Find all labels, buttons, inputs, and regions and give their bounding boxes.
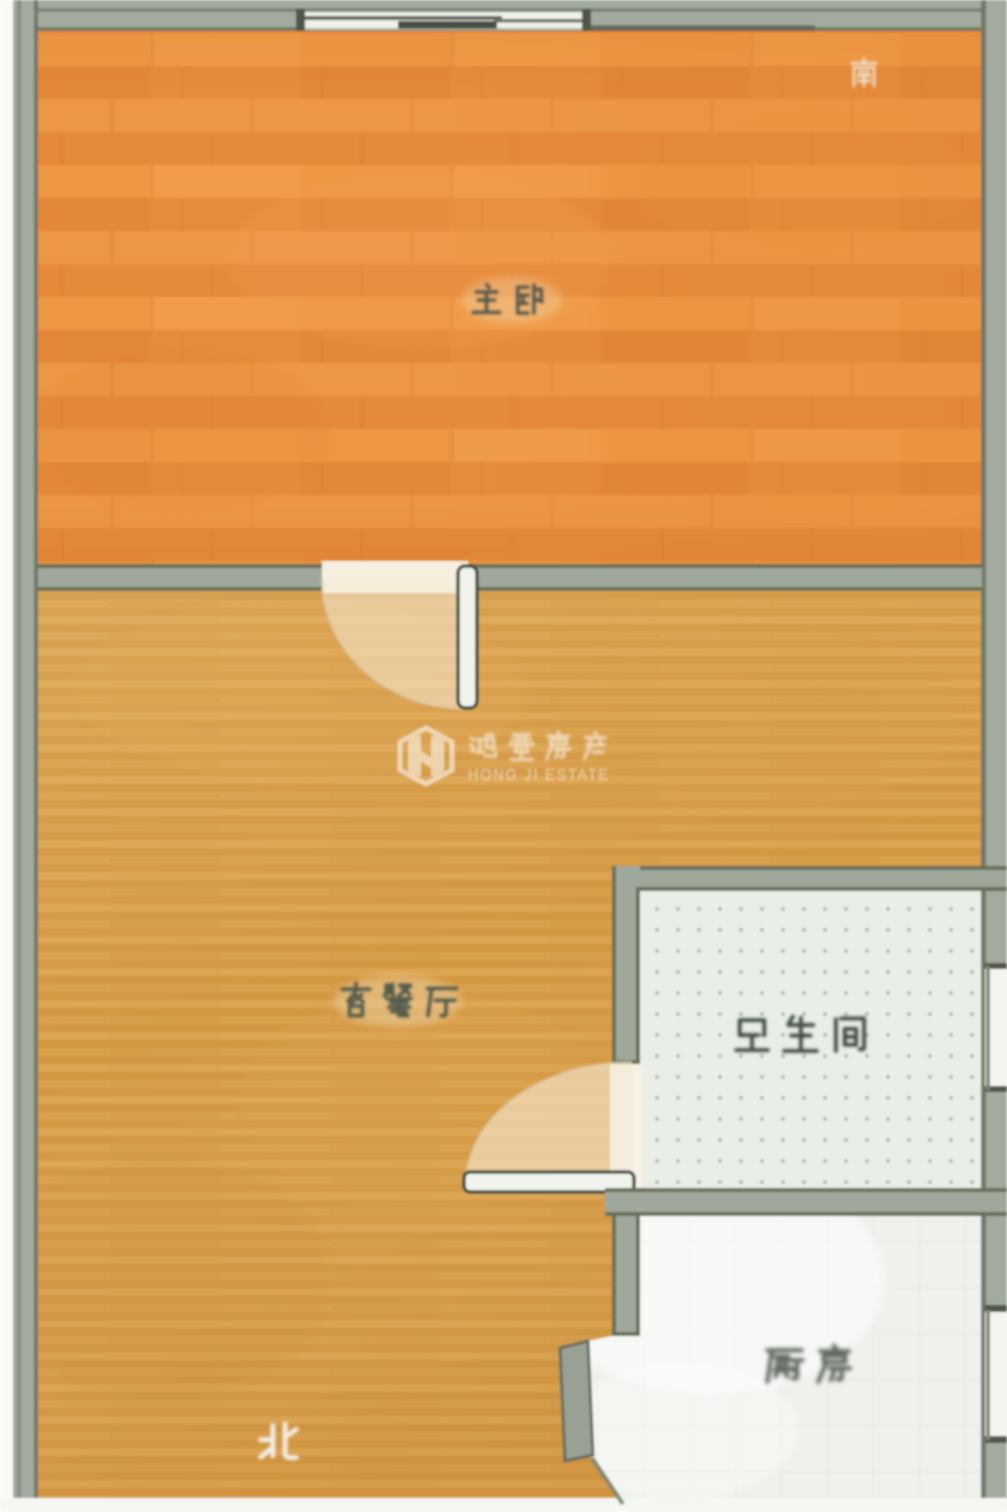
svg-text:HONG JI ESTATE: HONG JI ESTATE [468, 767, 610, 784]
